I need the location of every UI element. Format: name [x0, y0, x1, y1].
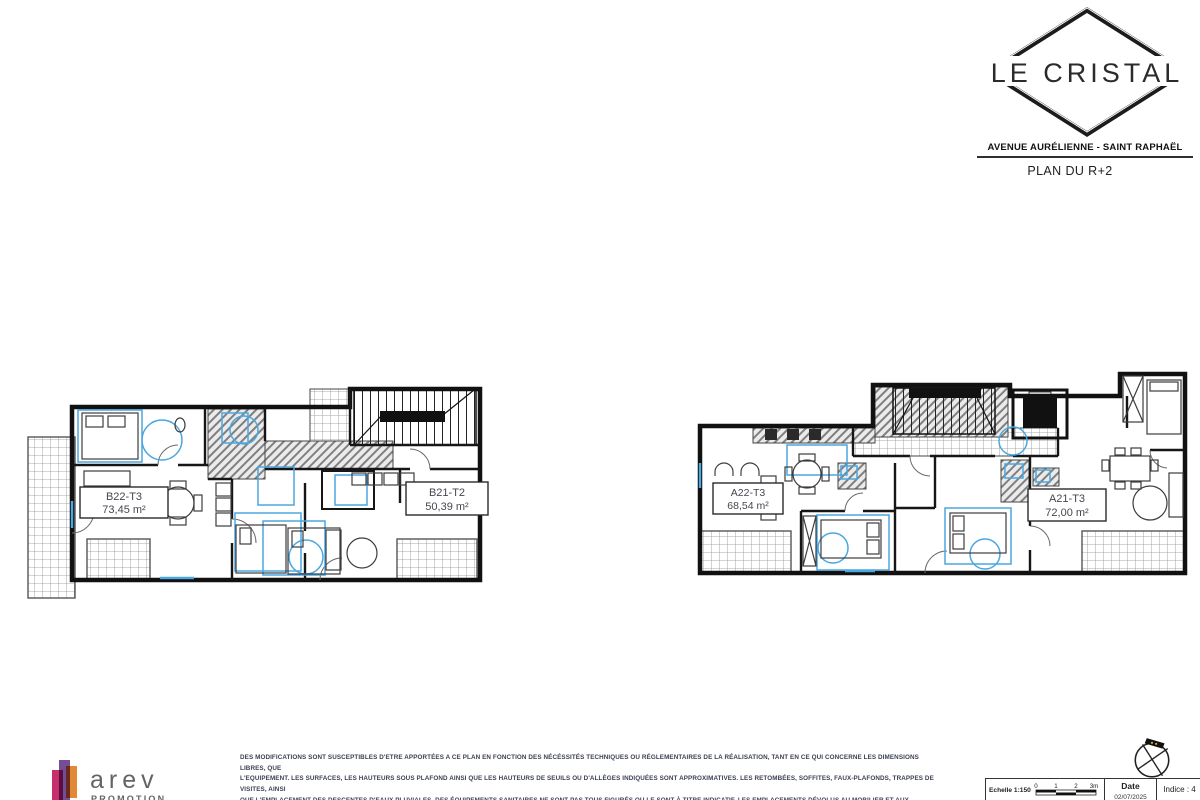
- unit-area: 73,45 m²: [102, 504, 146, 516]
- unit-area: 50,39 m²: [425, 501, 469, 513]
- kitchen-appliances: [765, 429, 821, 440]
- stairwell: [310, 389, 476, 445]
- unit-id: A22-T3: [731, 487, 766, 499]
- north-arrow-icon: [1129, 735, 1175, 781]
- address: AVENUE AURÉLIENNE - SAINT RAPHAËL: [975, 142, 1195, 153]
- scale-tick: 3m: [1089, 783, 1098, 790]
- unit-id: B22-T3: [106, 491, 142, 503]
- publisher-name: arev: [90, 766, 159, 795]
- page: LE CRISTAL AVENUE AURÉLIENNE - SAINT RAP…: [0, 0, 1200, 800]
- address-underline: [977, 156, 1193, 158]
- logo-title: LE CRISTAL: [985, 58, 1189, 89]
- date-value: 02/07/2025: [1108, 794, 1153, 800]
- date-label: Date: [1108, 781, 1153, 791]
- unit-area: 72,00 m²: [1045, 507, 1089, 519]
- titleblock: Echelle 1:150 0 1 2 3m Date 02/07/2025 I…: [985, 778, 1200, 800]
- scale-tick: 0: [1034, 783, 1038, 790]
- unit-label-b21: B21-T2 50,39 m²: [406, 482, 488, 515]
- publisher-subtitle: PROMOTION: [91, 794, 166, 800]
- titleblock-scale-cell: Echelle 1:150 0 1 2 3m: [986, 779, 1104, 800]
- publisher-logo-bars-icon: [52, 758, 80, 800]
- scale-bar: 0 1 2 3m: [1034, 781, 1100, 800]
- unit-area: 68,54 m²: [727, 500, 769, 512]
- unit-label-a22: A22-T3 68,54 m²: [713, 483, 783, 514]
- unit-id: A21-T3: [1049, 493, 1085, 505]
- publisher-logo: arev PROMOTION: [30, 756, 210, 800]
- floorplan-building-a: A22-T3 68,54 m² A21-T3 72,00 m²: [695, 368, 1190, 590]
- titleblock-indice: Indice : 4: [1156, 779, 1200, 800]
- disclaimer: DES MODIFICATIONS SONT SUSCEPTIBLES D'ET…: [240, 753, 945, 800]
- page-title: PLAN DU R+2: [975, 164, 1165, 178]
- floorplan-building-b: B22-T3 73,45 m² B21-T2 50,39 m²: [10, 383, 497, 605]
- disclaimer-line: DES MODIFICATIONS SONT SUSCEPTIBLES D'ET…: [240, 753, 945, 774]
- terrace-grid: [701, 531, 1185, 573]
- unit-label-b22: B22-T3 73,45 m²: [80, 487, 168, 518]
- scale-tick: 2: [1074, 783, 1078, 790]
- scale-label: Echelle 1:150: [989, 787, 1031, 794]
- titleblock-date-cell: Date 02/07/2025: [1104, 779, 1156, 800]
- stairwell: [893, 388, 995, 434]
- unit-label-a21: A21-T3 72,00 m²: [1028, 489, 1106, 521]
- disclaimer-line: L'EQUIPEMENT. LES SURFACES, LES HAUTEURS…: [240, 774, 945, 795]
- unit-id: B21-T2: [429, 487, 465, 499]
- scale-tick: 1: [1054, 783, 1058, 790]
- disclaimer-line: QUE L'EMPLACEMENT DES DESCENTES D'EAUX P…: [240, 796, 945, 800]
